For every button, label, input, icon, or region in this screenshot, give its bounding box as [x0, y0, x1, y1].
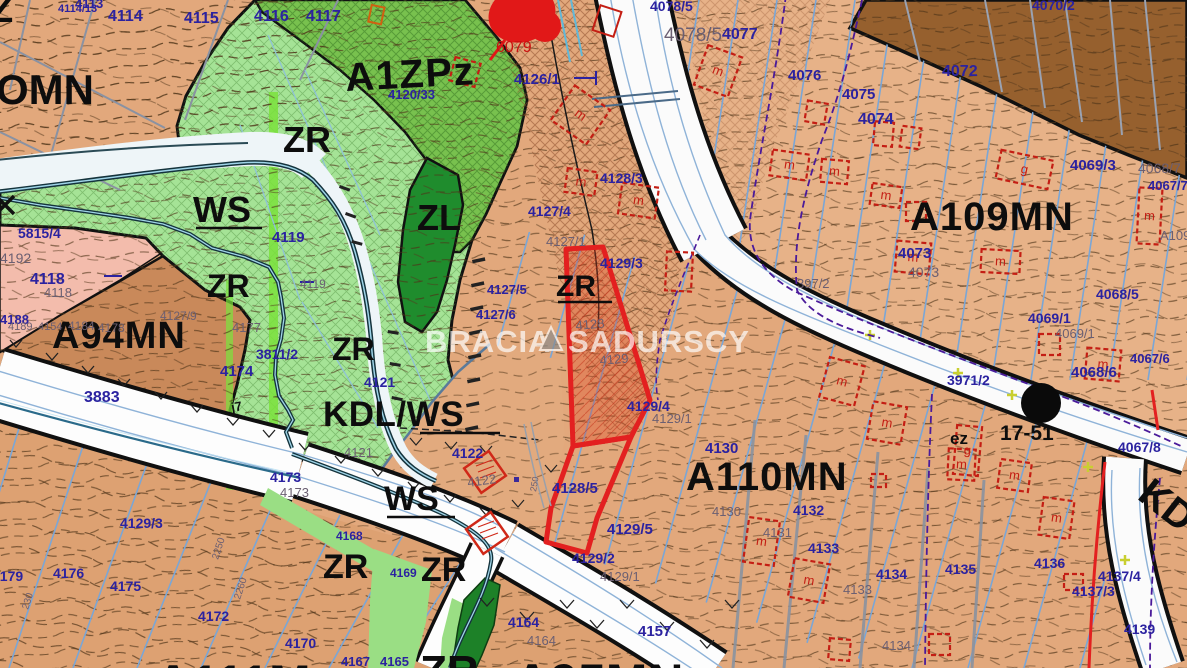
svg-text:3811/2: 3811/2	[256, 346, 298, 362]
svg-text:4072: 4072	[942, 63, 978, 80]
svg-text:4170: 4170	[285, 635, 316, 651]
svg-text:4118: 4118	[44, 285, 72, 300]
svg-text:4174: 4174	[220, 363, 254, 380]
svg-text:4116: 4116	[254, 8, 289, 25]
svg-text:3971/2: 3971/2	[947, 372, 990, 388]
svg-text:4126/1: 4126/1	[514, 71, 560, 88]
svg-text:4129/1: 4129/1	[652, 411, 692, 426]
svg-text:4067/8: 4067/8	[1118, 439, 1161, 455]
svg-text:ZR: ZR	[556, 270, 596, 303]
svg-text:KDL/WS: KDL/WS	[323, 395, 464, 434]
svg-text:4073: 4073	[908, 264, 939, 280]
svg-text:m: m	[828, 163, 840, 179]
svg-text:BRACIA: BRACIA	[425, 324, 552, 359]
svg-text:ZR: ZR	[283, 119, 331, 160]
svg-text:4129/5: 4129/5	[607, 521, 653, 538]
svg-text:4165: 4165	[380, 654, 409, 668]
svg-text:4134: 4134	[882, 638, 911, 653]
svg-text:4117: 4117	[306, 8, 341, 25]
svg-text:ZR: ZR	[421, 551, 466, 589]
svg-text:397/2: 397/2	[797, 276, 830, 291]
svg-text:4172: 4172	[198, 608, 229, 624]
svg-text:4069/1: 4069/1	[1055, 326, 1095, 341]
svg-text:A109MN: A109MN	[910, 195, 1074, 239]
svg-text:4129/3: 4129/3	[600, 255, 643, 271]
svg-text:4168: 4168	[336, 529, 363, 543]
svg-text:5815/4: 5815/4	[18, 225, 61, 241]
svg-text:3883: 3883	[84, 389, 120, 406]
svg-text:4120/33: 4120/33	[388, 87, 435, 102]
svg-text:4130: 4130	[712, 504, 741, 519]
svg-text:ZL: ZL	[417, 197, 461, 238]
svg-text:4179: 4179	[0, 568, 23, 584]
svg-text:17-51: 17-51	[1000, 422, 1054, 445]
svg-text:m: m	[880, 187, 893, 203]
svg-text:4127/9: 4127/9	[160, 309, 197, 323]
svg-text:4114/13: 4114/13	[58, 3, 97, 15]
svg-text:4075: 4075	[842, 86, 875, 103]
svg-text:4077: 4077	[722, 26, 758, 43]
svg-text:4164: 4164	[527, 633, 556, 648]
svg-text:4137/4: 4137/4	[1098, 568, 1141, 584]
svg-text:4134: 4134	[876, 566, 907, 582]
svg-text:4119: 4119	[272, 229, 305, 246]
svg-text:4130: 4130	[705, 440, 738, 457]
svg-text:4121: 4121	[344, 445, 373, 460]
svg-text:A110MN: A110MN	[686, 455, 848, 499]
svg-text:4121: 4121	[364, 374, 395, 390]
svg-text:4069/1: 4069/1	[1028, 310, 1071, 326]
svg-text:4078/5: 4078/5	[664, 25, 722, 46]
svg-text:4164: 4164	[508, 614, 539, 630]
svg-text:4129/3: 4129/3	[120, 515, 163, 531]
svg-text:4131: 4131	[763, 525, 792, 540]
svg-text:4176: 4176	[53, 565, 84, 581]
svg-text:WS: WS	[193, 189, 251, 230]
svg-text:ZR: ZR	[332, 331, 375, 367]
svg-text:4068/6: 4068/6	[1071, 364, 1117, 381]
svg-text:m: m	[632, 192, 645, 208]
svg-text:4132: 4132	[793, 502, 824, 518]
svg-text:4128/5: 4128/5	[552, 480, 598, 497]
svg-text:4119: 4119	[300, 277, 326, 291]
svg-text:OMN: OMN	[0, 66, 94, 113]
svg-text:4137/3: 4137/3	[1072, 583, 1115, 599]
svg-text:4068/7: 4068/7	[1138, 160, 1181, 176]
svg-text:4114: 4114	[108, 8, 143, 25]
svg-text:ZR: ZR	[207, 268, 250, 304]
svg-text:4127/4: 4127/4	[528, 203, 571, 219]
svg-text:4175: 4175	[110, 578, 141, 594]
svg-text:m: m	[783, 156, 796, 172]
svg-text:4129/2: 4129/2	[572, 550, 615, 566]
svg-text:4135: 4135	[945, 561, 976, 577]
svg-text:A95MN: A95MN	[514, 654, 683, 668]
svg-text:m: m	[1008, 467, 1021, 483]
svg-text:4154: 4154	[38, 321, 62, 333]
svg-text:4128/3: 4128/3	[600, 170, 643, 186]
svg-text:m: m	[1050, 509, 1063, 525]
svg-text:4115: 4115	[184, 10, 219, 27]
svg-text:4067/6: 4067/6	[1130, 351, 1170, 366]
svg-text:WS: WS	[384, 480, 439, 518]
svg-text:4068/5: 4068/5	[1096, 286, 1139, 302]
svg-text:4157: 4157	[638, 623, 671, 640]
svg-text:4192: 4192	[0, 250, 31, 266]
svg-text:ZR: ZR	[323, 548, 368, 586]
svg-text:A109: A109	[1160, 228, 1187, 243]
svg-text:SADURSCY: SADURSCY	[568, 324, 750, 359]
svg-text:4189: 4189	[8, 321, 32, 333]
svg-text:4184: 4184	[68, 319, 95, 333]
svg-text:4173: 4173	[280, 485, 309, 500]
svg-text:4133: 4133	[843, 582, 872, 597]
svg-text:Z: Z	[0, 0, 13, 31]
svg-text:4127/5: 4127/5	[487, 282, 527, 297]
svg-text:4139: 4139	[1124, 621, 1155, 637]
svg-text:4073: 4073	[898, 245, 931, 262]
svg-text:4074: 4074	[858, 111, 894, 128]
svg-text:4076: 4076	[788, 67, 821, 84]
svg-text:4177: 4177	[232, 320, 261, 335]
svg-text:4178: 4178	[98, 321, 125, 335]
svg-text:4122: 4122	[452, 445, 483, 461]
svg-text:4173: 4173	[270, 469, 301, 485]
svg-text:m: m	[995, 253, 1007, 269]
svg-text:4127/1: 4127/1	[546, 234, 586, 249]
svg-text:m: m	[1144, 208, 1156, 224]
svg-text:4167: 4167	[341, 654, 370, 668]
svg-text:4133: 4133	[808, 540, 839, 556]
svg-text:4070/2: 4070/2	[1032, 0, 1075, 13]
svg-text:4129/1: 4129/1	[600, 569, 640, 584]
svg-text:4078/5: 4078/5	[650, 0, 693, 14]
svg-text:ez: ez	[950, 429, 968, 448]
svg-text:A111M: A111M	[155, 655, 311, 668]
svg-text:4069/3: 4069/3	[1070, 157, 1116, 174]
svg-text:6079: 6079	[496, 39, 532, 56]
svg-text:m: m	[575, 173, 588, 189]
svg-text:4169: 4169	[390, 566, 417, 580]
svg-text:4067/7: 4067/7	[1148, 178, 1187, 193]
svg-text:4127/6: 4127/6	[476, 307, 516, 322]
svg-text:4136: 4136	[1034, 555, 1065, 571]
svg-text:ZR: ZR	[420, 647, 479, 668]
svg-text:m: m	[956, 456, 968, 472]
